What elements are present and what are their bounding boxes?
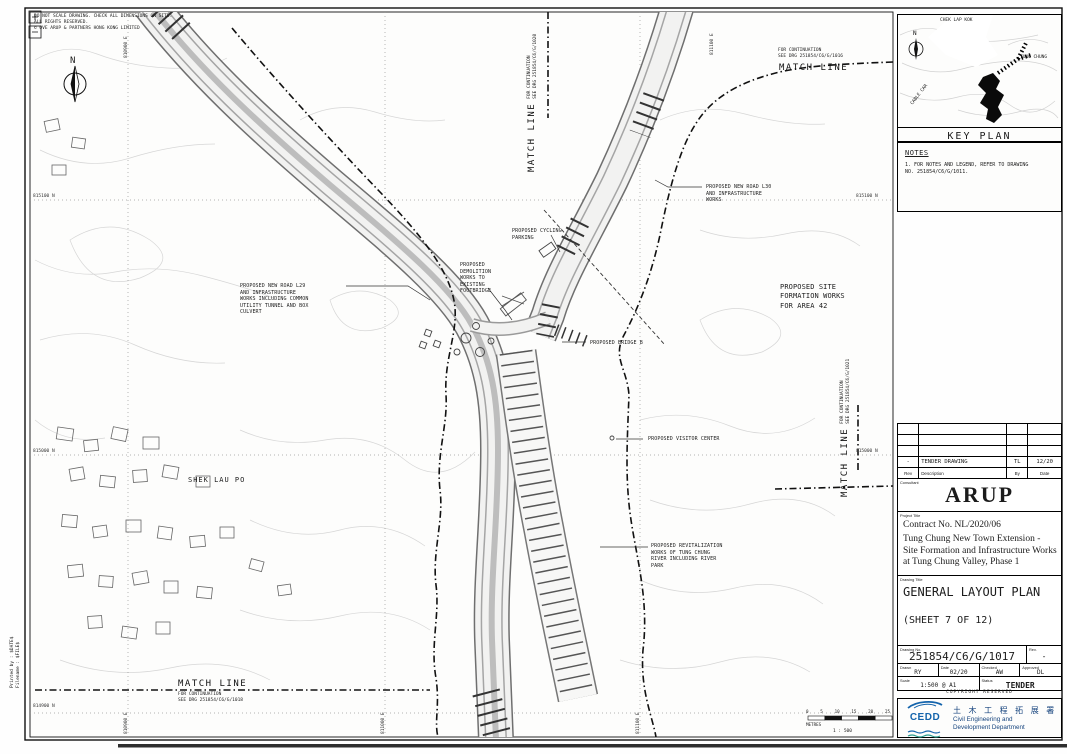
cedd-logo: CEDD [904,694,946,742]
rev-value: - [1042,652,1047,661]
cedd-logo-text: CEDD [904,713,946,723]
matchline-topcenter-note: FOR CONTINUATION SEE DRG 251854/C6/G/102… [527,34,539,99]
notes-title: NOTES [905,149,1061,157]
matchline-topright-title: MATCH LINE [779,63,848,73]
revision-header-row: Rev Description By Date [898,468,1061,479]
annotation-river-revitalization: PROPOSED REVITALIZATION WORKS OF TUNG CH… [651,543,723,569]
easting-811100-top: 811100 E [710,33,715,55]
matchline-right: MATCH LINE FOR CONTINUATION SEE DRG 2518… [840,359,852,497]
matchline-bottomleft-title: MATCH LINE [178,679,247,689]
key-plan-compass-icon: N [909,30,923,60]
matchline-topcenter-title: MATCH LINE [527,103,537,172]
drawing-sheet: DO NOT SCALE DRAWING. CHECK ALL DIMENSIO… [0,0,1067,754]
northing-815000-left: 815000 N [33,449,55,454]
easting-811000-bottom: 811000 E [381,712,386,734]
annotation-road-l29: PROPOSED NEW ROAD L29 AND INFRASTRUCTURE… [240,283,308,316]
matchline-right-title: MATCH LINE [840,428,850,497]
revision-date: 12/20 [1028,457,1061,467]
annotation-cycling-parking: PROPOSED CYCLING PARKING [512,228,562,241]
annotation-road-l30: PROPOSED NEW ROAD L30 AND INFRASTRUCTURE… [706,184,771,204]
cedd-panel: CEDD 土 木 工 程 拓 展 署 Civil Engineering and… [897,698,1062,738]
easting-810900-bottom: 810900 E [124,712,129,734]
page-edge-shadow [118,744,1067,748]
scale-bar-unit: METRES [806,722,821,727]
annotation-visitor-center: PROPOSED VISITOR CENTER [648,436,720,443]
plot-filename: Filename : $FILE$ [16,637,22,688]
matchline-right-note: FOR CONTINUATION SEE DRG 251854/C6/G/102… [840,359,852,424]
revision-rev: - [898,457,919,467]
northing-815000-right: 815000 N [856,449,878,454]
key-plan-works-area [978,73,1004,123]
annotation-demolition-footbridge: PROPOSED DEMOLITION WORKS TO EXISTING FO… [460,262,491,295]
date-value: 02/20 [950,669,968,676]
revision-description: TENDER DRAWING [919,457,1007,467]
plot-stamp: Printed by : $DATE$ Filename : $FILE$ [10,637,22,688]
project-title-label: Project Title [900,513,920,518]
matchline-bottomleft-note: FOR CONTINUATION SEE DRG 251854/C6/G/101… [178,692,243,704]
svg-text:N: N [913,30,917,37]
scale-value: 1:500 @ A1 [920,682,956,689]
corner-disclaimer: DO NOT SCALE DRAWING. CHECK ALL DIMENSIO… [34,14,274,32]
annotation-area-42: PROPOSED SITE FORMATION WORKS FOR AREA 4… [780,283,845,311]
sheet-number: (SHEET 7 OF 12) [903,615,993,626]
drawn-value: RY [914,669,921,676]
consultant-logo-arup: ARUP [945,482,1014,508]
northing-814900-left: 814900 N [33,704,55,709]
drawing-number: 251854/C6/G/1017 [909,650,1015,663]
drawing-title-label: Drawing Title [900,577,923,582]
scale-bar-ticks: 0 5 10 15 20 25 [806,709,890,714]
revision-row: - TENDER DRAWING TL 12/20 [898,457,1061,468]
cedd-waves-icon [906,730,944,738]
status-value: TENDER [1006,681,1035,690]
cedd-swoosh-icon [906,700,944,709]
drawing-no-label: Drawing No. [900,647,921,652]
notes-panel: NOTES 1. FOR NOTES AND LEGEND, REFER TO … [897,142,1062,212]
place-label-shek-lau-po: SHEK LAU PO [188,476,245,484]
scale-bar-ratio: 1 : 500 [833,729,852,734]
contract-number: Contract No. NL/2020/06 [903,520,1001,530]
project-title: Tung Chung New Town Extension - Site For… [903,534,1057,569]
northing-815100-right: 815100 N [856,194,878,199]
consultant-label: Consultant [900,480,919,485]
rev-label: Rev. [1029,647,1037,652]
drawing-title: GENERAL LAYOUT PLAN [903,585,1040,599]
northing-815100-left: 815100 N [33,194,55,199]
cedd-chinese-name: 土 木 工 程 拓 展 署 [953,705,1057,716]
easting-811100-bottom: 811100 E [636,712,641,734]
cedd-english-name: Civil Engineering and Development Depart… [953,716,1057,732]
matchline-topcenter: MATCH LINE FOR CONTINUATION SEE DRG 2518… [527,34,539,172]
title-block: - TENDER DRAWING TL 12/20 Rev Descriptio… [897,423,1062,691]
annotation-bridge-b: PROPOSED BRIDGE B [590,340,643,347]
key-plan-graphic: N [898,15,1061,125]
notes-item: 1. FOR NOTES AND LEGEND, REFER TO DRAWIN… [905,162,1061,175]
north-label: N [70,56,75,66]
keyplan-label-chek-lap-kok: CHEK LAP KOK [940,18,973,24]
keyplan-label-tung-chung: TUNG CHUNG [1020,55,1047,61]
matchline-topright-note: FOR CONTINUATION SEE DRG 251854/C6/G/101… [778,48,843,60]
scale-bar [808,716,892,720]
key-plan-title: KEY PLAN [947,131,1011,142]
key-plan-panel: N CHEK LAP KOK TUNG CHUNG CABLE CAR KEY … [897,14,1062,142]
revision-by: TL [1007,457,1028,467]
easting-810900-top: 810900 E [124,36,129,58]
